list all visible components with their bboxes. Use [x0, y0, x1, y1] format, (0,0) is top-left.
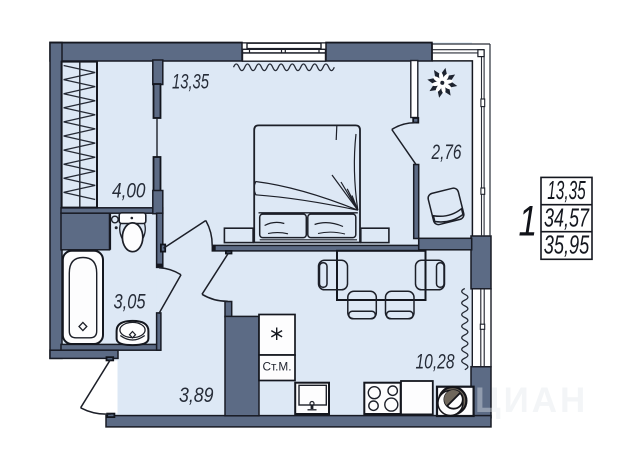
svg-text:3,89: 3,89	[179, 384, 214, 407]
svg-text:ЦИАН: ЦИАН	[475, 381, 588, 420]
svg-text:34,57: 34,57	[544, 202, 590, 232]
svg-text:13,35: 13,35	[547, 175, 586, 205]
svg-text:Ст.М.: Ст.М.	[263, 360, 292, 374]
svg-text:3,05: 3,05	[114, 290, 146, 313]
svg-text:10,28: 10,28	[416, 351, 455, 374]
svg-text:4,00: 4,00	[112, 180, 146, 203]
svg-text:13,35: 13,35	[172, 71, 209, 94]
svg-text:35,95: 35,95	[544, 230, 590, 260]
svg-text:1: 1	[519, 198, 538, 246]
svg-text:2,76: 2,76	[431, 141, 462, 164]
